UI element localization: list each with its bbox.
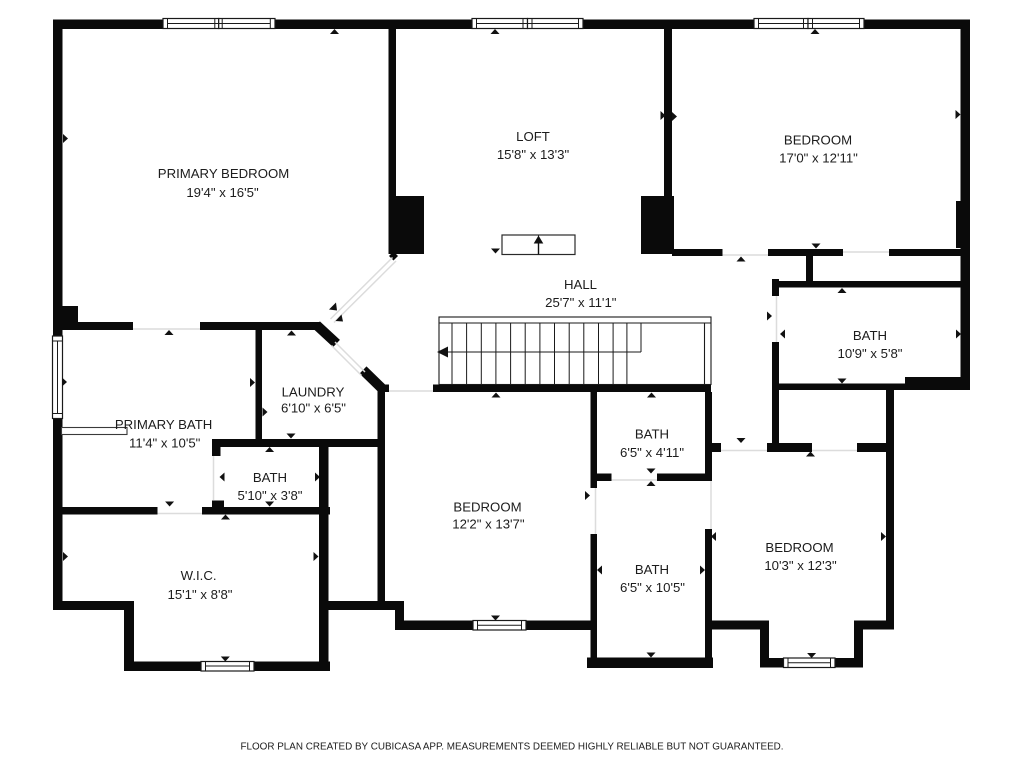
svg-text:LOFT: LOFT — [516, 129, 550, 144]
svg-text:10'9" x 5'8": 10'9" x 5'8" — [838, 346, 903, 361]
svg-text:BEDROOM: BEDROOM — [765, 540, 833, 555]
svg-text:FLOOR PLAN CREATED BY CUBICASA: FLOOR PLAN CREATED BY CUBICASA APP. MEAS… — [240, 742, 783, 753]
svg-text:W.I.C.: W.I.C. — [181, 568, 217, 583]
svg-text:19'4" x 16'5": 19'4" x 16'5" — [186, 185, 259, 200]
svg-text:PRIMARY BATH: PRIMARY BATH — [115, 417, 212, 432]
svg-text:LAUNDRY: LAUNDRY — [282, 385, 345, 400]
svg-text:6'5" x 4'11": 6'5" x 4'11" — [620, 445, 684, 460]
svg-text:5'10" x 3'8": 5'10" x 3'8" — [238, 488, 303, 503]
svg-text:25'7" x 11'1": 25'7" x 11'1" — [545, 295, 617, 310]
svg-text:BATH: BATH — [253, 470, 287, 485]
svg-text:17'0" x 12'11": 17'0" x 12'11" — [779, 151, 858, 166]
svg-text:HALL: HALL — [564, 277, 597, 292]
svg-text:10'3" x 12'3": 10'3" x 12'3" — [764, 558, 837, 573]
svg-text:BATH: BATH — [635, 562, 669, 577]
svg-text:BATH: BATH — [635, 427, 669, 442]
svg-text:15'1" x 8'8": 15'1" x 8'8" — [168, 587, 233, 602]
svg-text:BEDROOM: BEDROOM — [784, 133, 852, 148]
svg-text:11'4" x 10'5": 11'4" x 10'5" — [129, 436, 201, 451]
svg-text:6'5" x 10'5": 6'5" x 10'5" — [620, 580, 685, 595]
svg-text:PRIMARY BEDROOM: PRIMARY BEDROOM — [158, 166, 289, 181]
svg-text:BATH: BATH — [853, 328, 887, 343]
svg-text:6'10" x 6'5": 6'10" x 6'5" — [281, 401, 346, 416]
svg-text:12'2" x 13'7": 12'2" x 13'7" — [452, 517, 525, 532]
svg-text:BEDROOM: BEDROOM — [453, 500, 521, 515]
svg-text:15'8" x 13'3": 15'8" x 13'3" — [497, 147, 570, 162]
